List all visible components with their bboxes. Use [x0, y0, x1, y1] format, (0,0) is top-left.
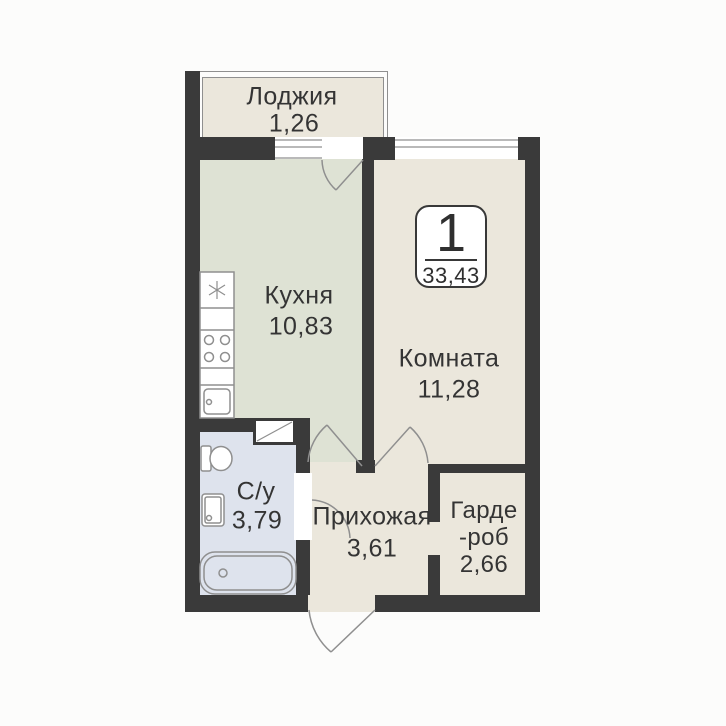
- wall-top-right: [518, 137, 540, 160]
- wall-top-middle: [363, 137, 395, 160]
- wall-bathroom-top: [200, 418, 253, 432]
- entrance-door-arc: [309, 610, 375, 652]
- hallway-area: 3,61: [347, 535, 397, 564]
- loggia-area: 1,26: [269, 110, 319, 139]
- wall-right: [525, 137, 540, 612]
- bathroom-area: 3,79: [232, 507, 282, 536]
- room-window: [395, 137, 518, 160]
- wall-door-pier: [356, 460, 375, 473]
- vent-shaft: [253, 418, 296, 445]
- entrance-door-gap: [308, 595, 375, 612]
- hallway-label: Прихожая: [312, 503, 431, 532]
- apartment-total-area: 33,43: [417, 263, 485, 289]
- room-kitchen: [200, 159, 363, 462]
- wall-left: [185, 71, 200, 612]
- apartment-rooms-count: 1: [417, 208, 485, 258]
- wardrobe-label-line1: Гарде: [450, 497, 517, 525]
- wall-top-left: [200, 137, 275, 160]
- kitchen-area: 10,83: [269, 313, 334, 342]
- wall-kitchen-room: [362, 159, 374, 461]
- wall-wardrobe-lower: [428, 555, 440, 597]
- living-room-area: 11,28: [418, 376, 481, 405]
- living-room-label: Комната: [399, 345, 500, 374]
- floor-plan: 1 33,43 Лоджия 1,26 Кухня 10,83 Комната …: [0, 0, 726, 726]
- wall-bathroom-right-lower: [296, 540, 310, 595]
- wall-room-wardrobe: [428, 464, 525, 473]
- wardrobe-area: 2,66: [460, 551, 508, 579]
- bathroom-label: С/у: [237, 478, 276, 507]
- bathroom-door-gap: [294, 473, 312, 540]
- apartment-badge: 1 33,43: [415, 205, 487, 288]
- loggia-label: Лоджия: [247, 83, 338, 112]
- wardrobe-label-line2: -роб: [459, 524, 509, 552]
- kitchen-window: [275, 137, 363, 160]
- wall-bathroom-right-upper: [296, 418, 310, 473]
- kitchen-label: Кухня: [265, 282, 334, 311]
